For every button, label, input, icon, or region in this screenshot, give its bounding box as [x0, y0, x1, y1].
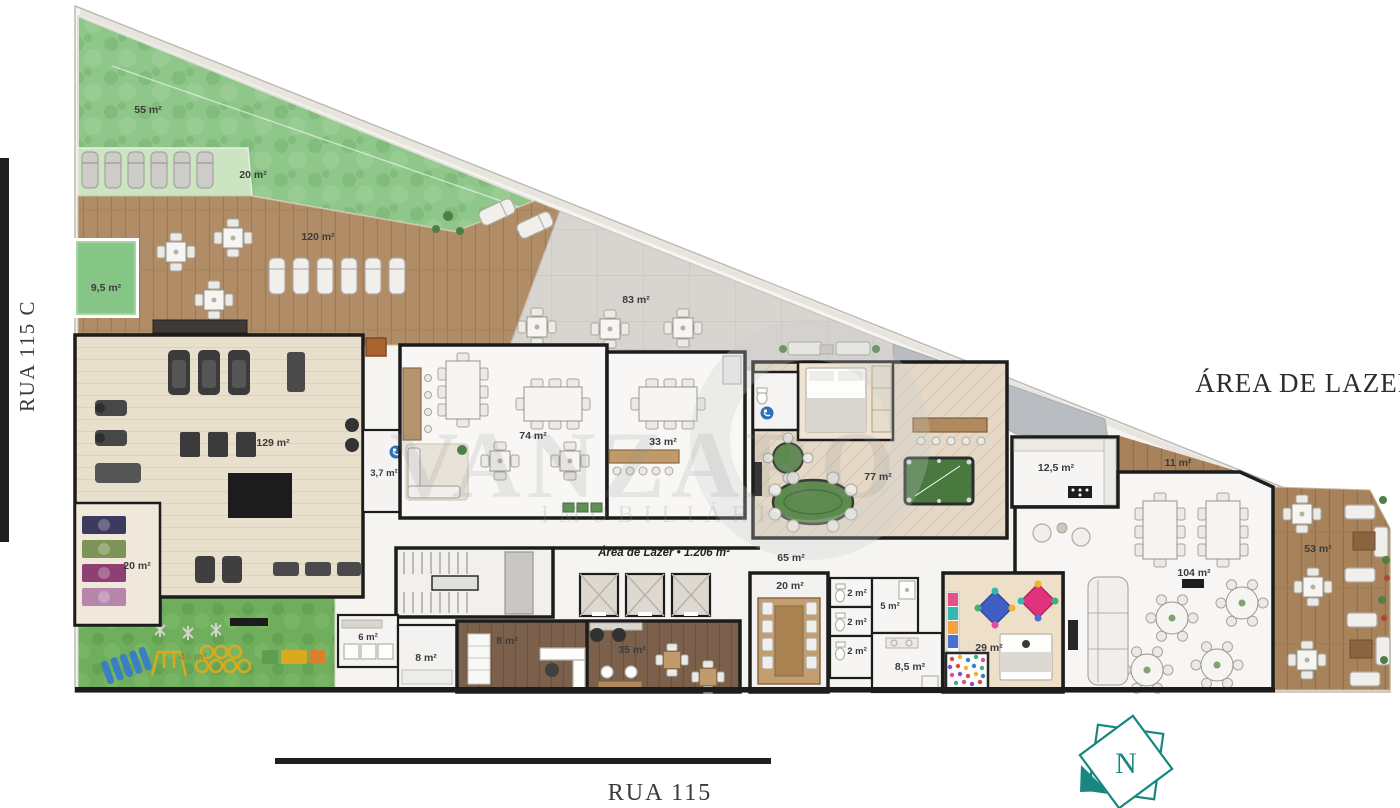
play-train: [262, 650, 325, 664]
label-plunge-pool: 9,5 m²: [91, 282, 122, 294]
gym-room: [75, 335, 386, 625]
dark-wood-rooms: [457, 621, 740, 693]
label-shower: 5 m²: [880, 601, 900, 612]
label-stone-terrace: 83 m²: [622, 294, 650, 306]
kids-shelf: [947, 592, 959, 652]
wall-stub: [230, 618, 268, 626]
street-bottom-bar: [275, 758, 771, 764]
fireplace-marker: [1182, 579, 1204, 588]
kids-playroom: [943, 573, 1063, 692]
label-party-room: 74 m²: [519, 430, 547, 442]
south-wall: [75, 687, 1275, 693]
street-left-bar: [0, 158, 9, 542]
floor-plan-svg: VANZARO IMOBILIÁRIA 55 m² 20 m² 120 m² 9…: [0, 0, 1400, 808]
label-kids: 29 m²: [975, 642, 1003, 654]
label-gym-wc: 3,7 m²: [370, 468, 397, 479]
street-bottom-label: RUA 115: [608, 780, 712, 806]
ballroom-table-icon: [1135, 493, 1185, 567]
plunge-pool: [73, 238, 139, 318]
label-wood-deck: 120 m²: [301, 231, 335, 243]
label-wc2: 2 m²: [847, 617, 867, 628]
label-restrooms: 8,5 m²: [895, 661, 926, 673]
label-wine-cellar: 8 m²: [496, 635, 518, 647]
label-wc3: 2 m²: [847, 646, 867, 657]
label-beauty-salon: 35 m²: [618, 644, 646, 656]
label-lawn: 55 m²: [134, 104, 162, 116]
label-storage: 8 m²: [415, 652, 437, 664]
floor-plan-page: VANZARO IMOBILIÁRIA 55 m² 20 m² 120 m² 9…: [0, 0, 1400, 808]
label-total-area: Área de Lazer • 1.206 m²: [597, 546, 731, 559]
label-dining-room: 33 m²: [649, 436, 677, 448]
label-wc1: 2 m²: [847, 588, 867, 599]
label-hall: 65 m²: [777, 552, 805, 564]
label-games-room: 77 m²: [864, 471, 892, 483]
sector-title: ÁREA DE LAZER: [1195, 368, 1400, 398]
watermark-line2: IMOBILIÁRIA: [541, 502, 803, 528]
label-gourmet: 12,5 m²: [1038, 462, 1075, 474]
compass: N: [1080, 716, 1172, 808]
label-gym: 129 m²: [256, 437, 290, 449]
ballroom-table-icon: [1198, 493, 1248, 567]
label-locker: 6 m²: [358, 632, 378, 643]
label-ballroom: 104 m²: [1177, 567, 1211, 579]
compass-letter: N: [1115, 747, 1137, 780]
label-yoga: 20 m²: [123, 560, 151, 572]
label-sun-lounge: 20 m²: [239, 169, 267, 181]
stairwell: [396, 548, 553, 617]
street-left-label: RUA 115 C: [15, 300, 39, 412]
label-playground: 45 m²: [179, 651, 207, 663]
ball-pit: [946, 653, 988, 690]
kids-bed: [1000, 634, 1052, 680]
label-east-deck: 53 m²: [1304, 543, 1332, 555]
label-sauna: 20 m²: [776, 580, 804, 592]
label-corridor: 11 m²: [1165, 457, 1192, 469]
